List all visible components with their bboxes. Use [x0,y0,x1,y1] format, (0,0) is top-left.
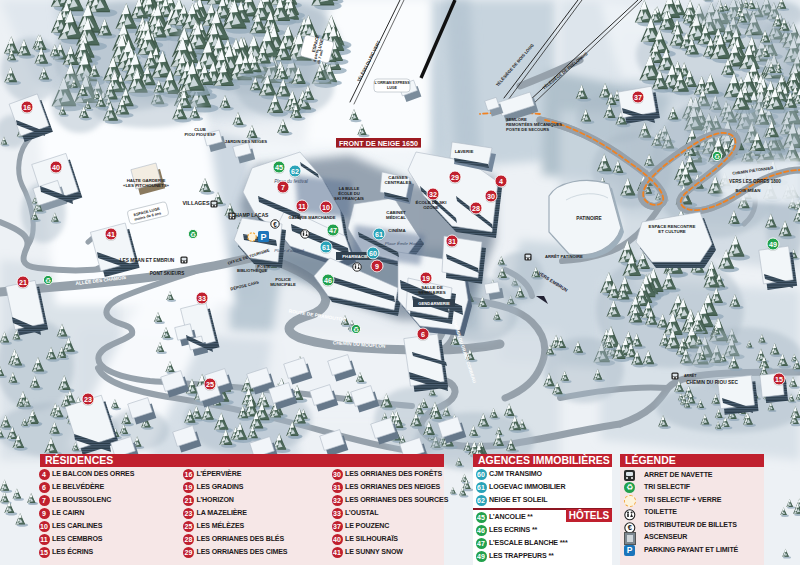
svg-text:LES MEAN ET EMBRUN: LES MEAN ET EMBRUN [120,258,175,263]
svg-text:41: 41 [107,230,115,239]
svg-text:PATINOIRE: PATINOIRE [576,216,602,221]
svg-text:VERS LES ORRES 1800: VERS LES ORRES 1800 [729,179,781,184]
svg-text:23: 23 [84,395,92,404]
svg-text:PIOU PIOU ESF: PIOU PIOU ESF [185,132,216,137]
svg-text:30: 30 [487,192,495,201]
svg-text:45: 45 [275,163,283,172]
svg-text:€: € [273,221,277,228]
svg-text:SÉMINAIRES: SÉMINAIRES [418,290,445,295]
svg-text:CENTRALES: CENTRALES [385,180,412,185]
svg-text:ARRÊT PATINOIRE: ARRÊT PATINOIRE [545,254,583,259]
svg-text:POSTE: POSTE [257,264,271,269]
svg-text:JARDIN DES NEIGES: JARDIN DES NEIGES [225,139,268,144]
svg-text:4: 4 [499,177,503,186]
svg-text:61: 61 [375,230,383,239]
svg-text:Place Émile Hodoul: Place Émile Hodoul [385,241,424,246]
svg-text:ET CULTURE: ET CULTURE [658,229,686,234]
svg-text:OZONE: OZONE [423,205,439,210]
svg-text:PONT SKIEURS: PONT SKIEURS [150,271,184,276]
svg-text:SKI FRANÇAIS: SKI FRANÇAIS [334,196,364,201]
svg-text:47: 47 [329,226,337,235]
svg-text:LAVERIE: LAVERIE [455,149,474,154]
svg-text:GENDARMERIE: GENDARMERIE [418,301,450,306]
svg-text:BOIS MÉAN: BOIS MÉAN [736,188,761,193]
svg-text:28: 28 [472,204,480,213]
svg-text:49: 49 [769,240,777,249]
svg-text:62: 62 [291,167,299,176]
svg-text:29: 29 [451,173,459,182]
svg-text:37: 37 [634,93,642,102]
svg-text:FRONT DE NEIGE 1650: FRONT DE NEIGE 1650 [339,139,418,148]
svg-text:MÉDICAL: MÉDICAL [386,215,406,220]
svg-text:P: P [260,232,266,242]
svg-text:7: 7 [281,183,285,192]
svg-text:CHEMIN DU RIOU SEC: CHEMIN DU RIOU SEC [686,380,738,385]
svg-text:GALERIE MARCHANDE: GALERIE MARCHANDE [288,215,335,220]
svg-text:ARRÊT: ARRÊT [684,373,697,378]
svg-text:32: 32 [429,190,437,199]
svg-text:CHAMP LACAS: CHAMP LACAS [232,212,270,218]
svg-text:46: 46 [324,276,332,285]
svg-text:♻: ♻ [353,326,359,333]
svg-text:60: 60 [369,249,377,258]
svg-text:15: 15 [775,375,783,384]
svg-text:L’ORRIAN EXPRESS: L’ORRIAN EXPRESS [374,81,410,85]
svg-text:31: 31 [448,237,456,246]
svg-text:9: 9 [375,262,379,271]
svg-text:25: 25 [206,380,214,389]
svg-text:«LES PITCHOUNETS»: «LES PITCHOUNETS» [123,183,170,188]
svg-text:21: 21 [19,278,27,287]
svg-text:♻: ♻ [714,153,720,160]
svg-text:PHARMACIE: PHARMACIE [342,254,368,259]
svg-text:MUNICIPALE: MUNICIPALE [270,282,296,287]
svg-text:19: 19 [422,274,430,283]
svg-text:6: 6 [421,330,425,339]
svg-text:POSTE DE SECOURS: POSTE DE SECOURS [506,127,549,132]
svg-text:CINÉMA: CINÉMA [388,228,406,233]
svg-text:40: 40 [52,163,60,172]
svg-text:Place d’accueil: Place d’accueil [274,248,304,253]
svg-text:10: 10 [322,203,330,212]
svg-text:33: 33 [198,294,206,303]
svg-text:16: 16 [23,103,31,112]
svg-text:11: 11 [298,202,306,211]
svg-text:♻: ♻ [190,231,196,238]
svg-text:♻: ♻ [45,277,51,284]
svg-text:VILLAGES: VILLAGES [183,200,210,206]
svg-text:61: 61 [322,243,330,252]
svg-text:LUGE: LUGE [387,86,398,90]
